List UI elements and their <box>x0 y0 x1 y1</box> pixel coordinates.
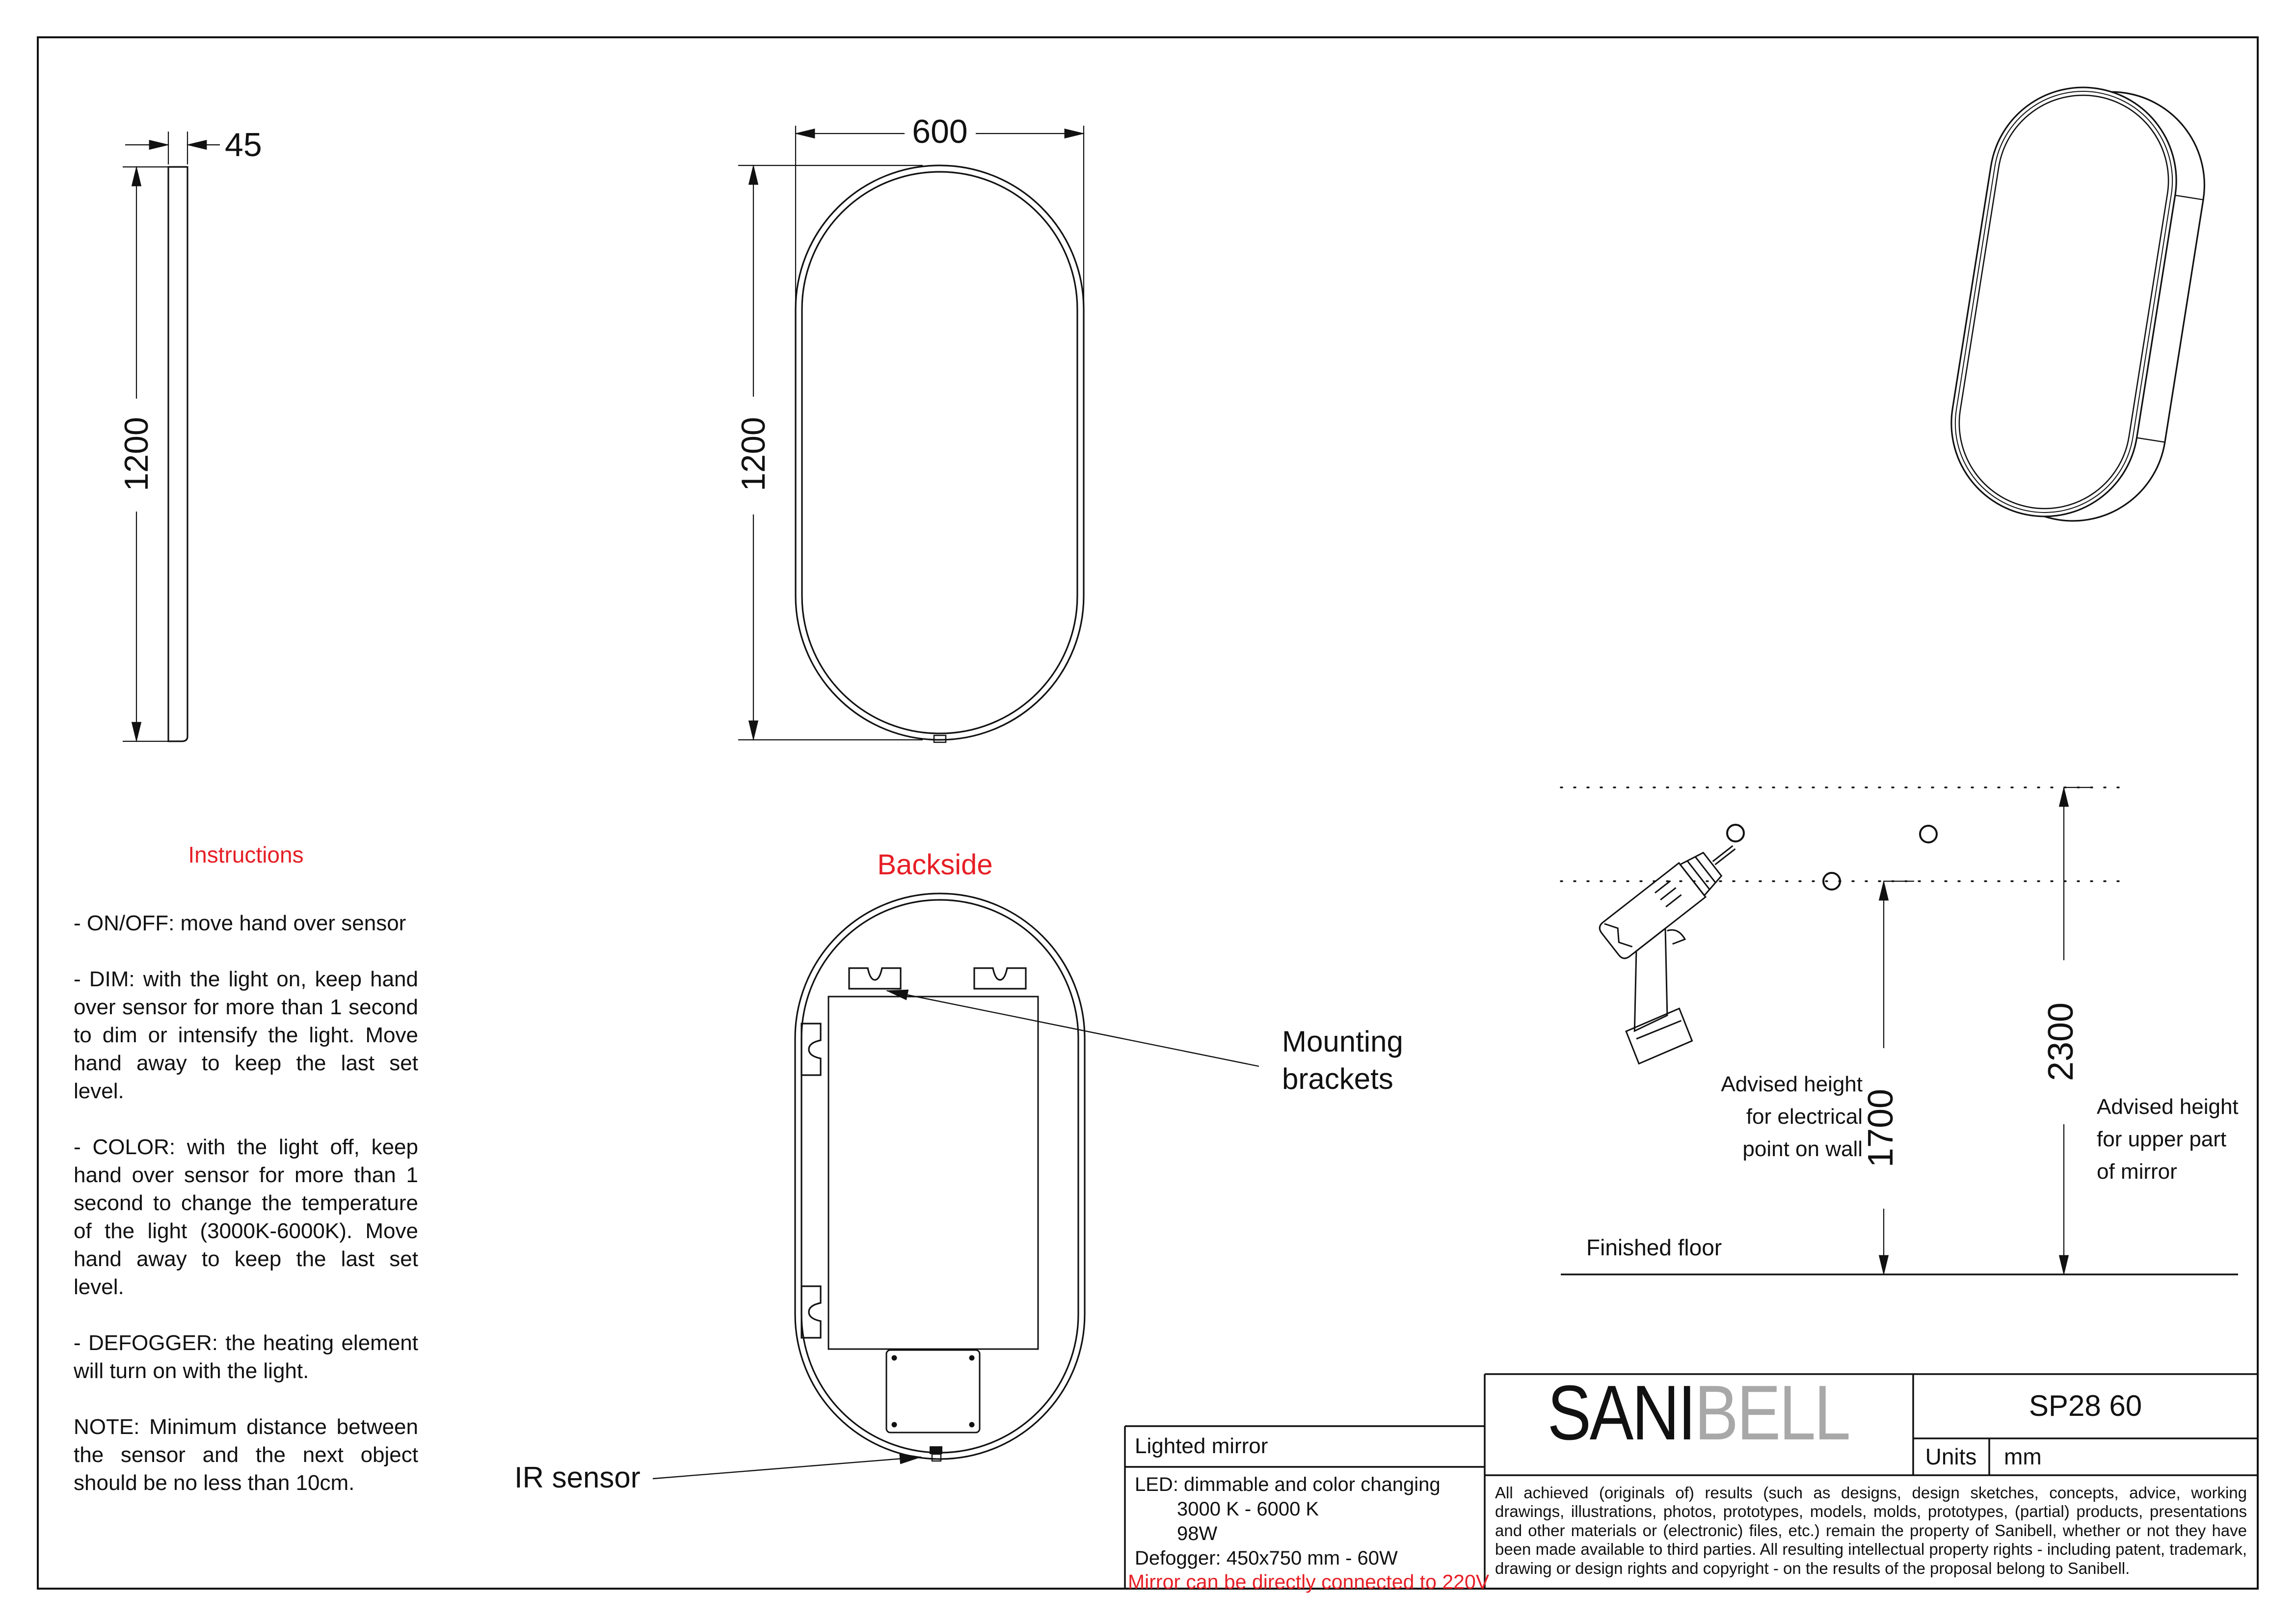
finished-floor-label: Finished floor <box>1586 1236 1722 1259</box>
instructions-block: Instructions - ON/OFF: move hand over se… <box>74 843 418 1497</box>
mirror-height-label-line2: for upper part <box>2097 1123 2239 1156</box>
model-number: SP28 60 <box>2029 1391 2142 1421</box>
mirror-height-label-line3: of mirror <box>2097 1156 2239 1188</box>
mounting-bracket-side-upper <box>801 1024 821 1075</box>
led-spec-line3: 98W <box>1177 1521 1217 1546</box>
backside-title: Backside <box>877 851 992 879</box>
installation-diagram <box>1557 787 2238 1274</box>
electrical-height-label-line2: for electrical <box>1607 1101 1863 1133</box>
units-label: Units <box>1925 1445 1977 1468</box>
defogger-pad <box>828 997 1038 1349</box>
electrical-height-label: Advised height for electrical point on w… <box>1607 1068 1863 1165</box>
mirror-height-label-line1: Advised height <box>2097 1091 2239 1123</box>
units-value: mm <box>2004 1445 2042 1468</box>
dim-1700-lines <box>1884 881 1914 1274</box>
voltage-warning: Mirror can be directly connected to 220V <box>1128 1569 1489 1594</box>
sanibell-logo-bell: BELL <box>1694 1370 1849 1456</box>
product-name: Lighted mirror <box>1135 1435 1268 1457</box>
perspective-view <box>1938 74 2218 535</box>
mounting-brackets-label-line1: Mounting <box>1282 1027 1403 1056</box>
sanibell-logo: SANIBELL <box>1548 1374 1849 1452</box>
legal-text: All achieved (originals of) results (suc… <box>1495 1484 2247 1578</box>
dim-front-width: 600 <box>912 115 967 148</box>
dim-side-thickness: 45 <box>225 128 262 162</box>
instruction-color: - COLOR: with the light off, keep hand o… <box>74 1133 418 1301</box>
ir-sensor-mark <box>930 1446 942 1454</box>
instruction-dim: - DIM: with the light on, keep hand over… <box>74 965 418 1105</box>
drill-hole <box>1727 825 1744 841</box>
electrical-height-label-line1: Advised height <box>1607 1068 1863 1101</box>
instruction-note: NOTE: Minimum distance between the senso… <box>74 1413 418 1497</box>
instruction-onoff: - ON/OFF: move hand over sensor <box>74 909 418 937</box>
technical-drawing-page: 45 1200 600 1200 1700 2300 Instructions … <box>0 0 2296 1623</box>
electrical-height-label-line3: point on wall <box>1607 1133 1863 1165</box>
junction-box-screws <box>892 1355 975 1428</box>
dim-electrical-height: 1700 <box>1863 1089 1898 1167</box>
dim-side-height: 1200 <box>120 417 153 491</box>
sanibell-logo-sani: SANI <box>1548 1370 1695 1456</box>
led-spec-line2: 3000 K - 6000 K <box>1177 1497 1319 1521</box>
leader-lines <box>653 991 1259 1479</box>
ir-sensor-label: IR sensor <box>514 1463 641 1492</box>
wall-hole-upper <box>1920 826 1937 842</box>
drill-icon <box>1557 830 1812 1075</box>
junction-box <box>886 1350 980 1433</box>
mounting-bracket-side-lower <box>801 1286 821 1338</box>
backside-view <box>653 893 1259 1479</box>
dim-front-height: 1200 <box>737 417 770 491</box>
led-spec-line1: LED: dimmable and color changing <box>1135 1472 1441 1497</box>
dim-mirror-height: 2300 <box>2043 1002 2079 1081</box>
mounting-bracket-top-left <box>849 968 901 989</box>
mirror-height-label: Advised height for upper part of mirror <box>2097 1091 2239 1188</box>
front-view <box>738 126 1084 742</box>
mounting-bracket-top-right <box>974 968 1026 989</box>
defogger-spec-line: Defogger: 450x750 mm - 60W <box>1135 1546 1398 1570</box>
front-ir-sensor-mark <box>934 735 946 742</box>
mounting-brackets-label-line2: brackets <box>1282 1064 1393 1094</box>
instruction-defogger: - DEFOGGER: the heating element will tur… <box>74 1329 418 1385</box>
instructions-title: Instructions <box>74 843 418 866</box>
